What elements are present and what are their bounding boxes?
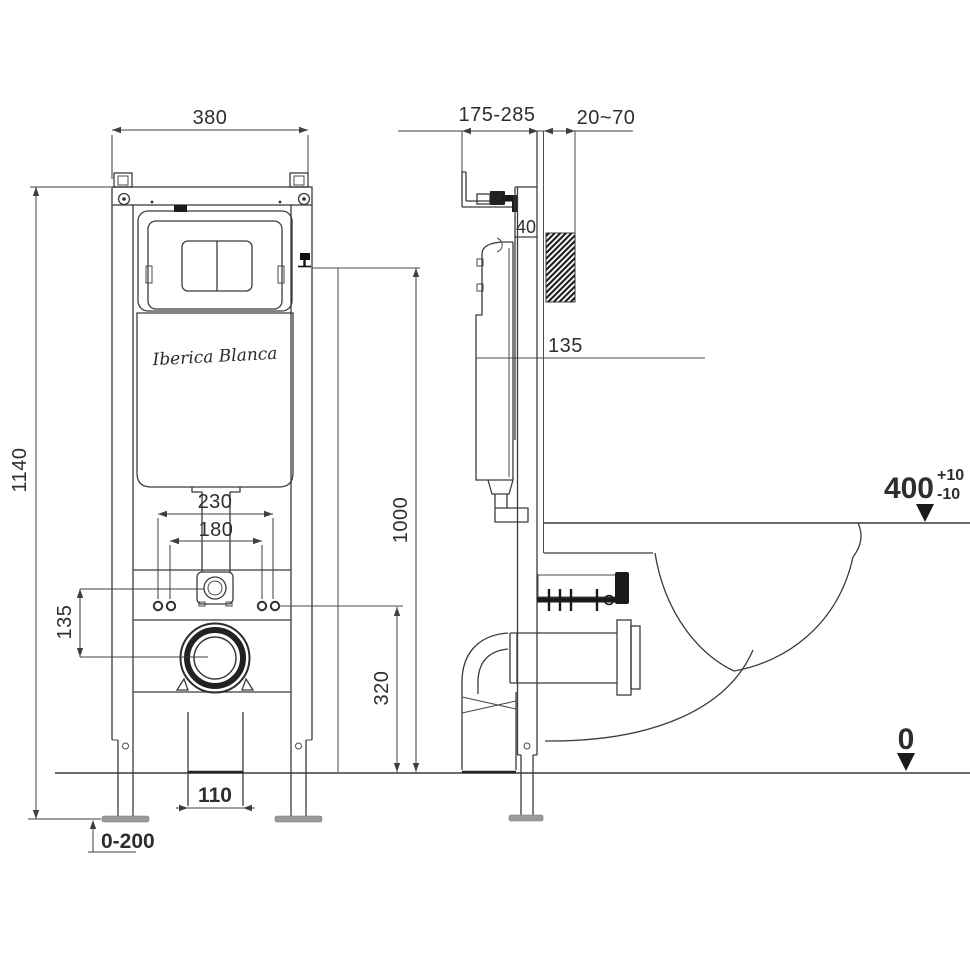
wall-section-hatch [546,131,575,302]
side-rail: 40 [509,131,544,821]
flush-pipe-connector [510,620,640,695]
dim-frame-height: 1140 [9,187,111,819]
drain-elbow [462,633,516,772]
dim-inlet-drain-offset: 135 [54,589,208,657]
level-marker-icon [916,504,934,522]
floor-level-label: 0 [898,723,915,756]
dim-bolt-spacing-outer: 230 [158,491,273,599]
drain-ring [177,624,253,693]
fixing-holes [154,602,279,610]
leg-pin-hole [123,743,129,749]
dim-cistern-offset: 135 [476,335,705,358]
dim-bolt-height-label: 320 [371,671,393,706]
dim-inlet-drain-offset-label: 135 [54,605,76,640]
water-inlet-valve-icon [298,253,311,267]
front-view: Iberica Blanca [9,107,420,853]
flush-plate [138,205,292,311]
adjustable-feet [102,816,322,822]
brand-logo-text: Iberica Blanca [151,344,278,371]
dim-bolt-spacing-outer-label: 230 [198,491,233,513]
leg-pin-hole [296,743,302,749]
cistern-side [476,238,528,522]
side-view: 175-285 20~70 40 [398,104,970,821]
leg-pin-hole [524,743,530,749]
dim-cistern-offset-label: 135 [548,335,583,357]
dim-wall-thickness-label: 20~70 [577,107,636,129]
wall-bracket [462,172,515,212]
drawing-page: Iberica Blanca [0,0,970,970]
dim-bolt-spacing-inner-label: 180 [199,519,234,541]
dim-inlet-height-label: 1000 [390,497,412,544]
dim-wall-thickness: 20~70 [544,107,635,134]
dim-frame-height-label: 1140 [9,447,31,492]
dim-bracket-range-label: 175-285 [459,104,536,126]
dim-bolt-spacing-inner: 180 [170,519,262,599]
dim-drain-width-label: 110 [198,784,232,807]
plate-clip-icon [174,205,187,212]
adjustable-foot [509,815,543,821]
dim-bolt-height: 320 [371,607,400,772]
dim-leg-adjust-label: 0-200 [101,830,155,853]
dim-rim-height-label: 400 [884,472,934,505]
floor-level-marker: 0 [897,723,915,771]
dim-frame-width: 380 [112,107,308,179]
technical-drawing: Iberica Blanca [0,0,970,970]
dim-leg-adjust: 0-200 [75,819,155,853]
rim-tolerance-minus-label: -10 [937,486,960,503]
rim-height-marker: 400 +10 -10 [884,467,964,522]
toilet-bowl-profile [544,523,970,741]
dim-inlet-height: 1000 [390,268,419,772]
dim-frame-width-label: 380 [193,107,228,129]
rim-tolerance-plus-label: +10 [937,467,964,484]
mounting-bolt [537,572,629,611]
dim-rail-depth-label: 40 [516,217,536,237]
